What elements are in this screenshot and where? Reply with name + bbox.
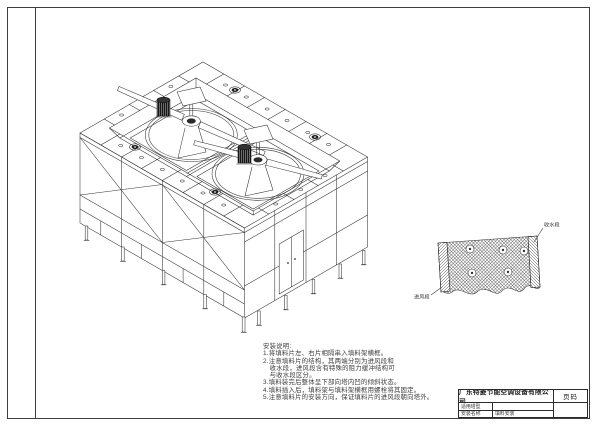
- page-number-label: 页码: [554, 390, 587, 403]
- install-name-label: 安装名称: [459, 411, 493, 418]
- leader-line-drift-eliminator: [534, 228, 543, 242]
- tower-box-outline: [80, 62, 368, 318]
- motor-1: [156, 97, 172, 117]
- note-line: 2.注意填料片的结构，其两端分别为进风段和: [263, 358, 463, 365]
- drive-housing-2: [244, 125, 273, 144]
- fill-media-body: [438, 236, 540, 294]
- tower-type-label: 适用塔型: [459, 403, 493, 411]
- tower-type-value: [493, 403, 554, 411]
- right-wall: [245, 171, 368, 301]
- vent-guard-icon: [230, 87, 241, 93]
- motor-2: [237, 144, 253, 164]
- leader-line-air-inlet: [431, 287, 442, 295]
- drift-eliminator-label: 收水段: [544, 221, 560, 229]
- note-line: 3.填料装完后整体呈下部向塔内凹的倾斜状态。: [263, 379, 463, 386]
- air-inlet-label: 进风段: [414, 293, 430, 301]
- note-line: 4.填料插入后，填料架与填料架横框用螺栓将其固定。: [263, 387, 463, 394]
- fan-support-2: [245, 165, 273, 196]
- access-door: [279, 230, 303, 294]
- installation-notes: 安装说明: 1.将填料片左、右片相隔串入填料架横框。 2.注意填料片的结构，其两…: [263, 343, 463, 401]
- fill-sheet-detail: 收水段 进风段: [414, 221, 560, 301]
- note-line: 1.将填料片左、右片相隔串入填料架横框。: [263, 350, 463, 357]
- drawing-sheet: 收水段 进风段 安装说明: 1.将填料片左、右片相隔串入填料架横框。 2.注意填…: [0, 0, 600, 424]
- install-name-value: 填料安装: [493, 411, 554, 418]
- note-line: 5.注意填料片的安装方向，保证填料片的进风段朝向塔外。: [263, 394, 463, 401]
- vent-guard-icon: [310, 134, 321, 140]
- vent-guard-icon: [210, 189, 221, 195]
- cooling-tower-drawing: [80, 62, 368, 332]
- title-block: 广东特菱节能空调设备有限公司 页码 适用塔型 安装名称 填料安装: [458, 389, 588, 418]
- company-name: 广东特菱节能空调设备有限公司: [459, 390, 554, 403]
- fan-support-1: [178, 126, 206, 158]
- page-number-value: [554, 403, 587, 417]
